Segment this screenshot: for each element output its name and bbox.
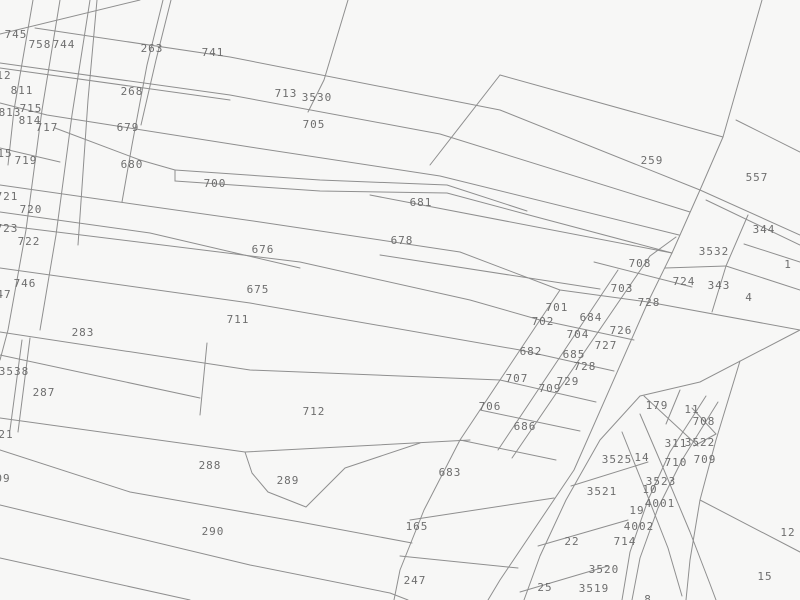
parcel-label-676: 676 [252, 243, 275, 256]
parcel-label-702: 702 [532, 315, 555, 328]
parcel-label-8: 8 [644, 593, 652, 600]
parcel-label-679: 679 [117, 121, 140, 134]
parcel-boundary-line [55, 128, 175, 170]
parcel-boundary-line [8, 0, 33, 165]
parcel-label-557: 557 [746, 171, 769, 184]
parcel-label-3520: 3520 [589, 563, 620, 576]
parcel-boundary-line [245, 443, 420, 507]
parcel-boundary-line [460, 440, 556, 460]
parcel-boundary-line [686, 361, 740, 600]
parcel-label-707: 707 [506, 372, 529, 385]
parcel-label-700: 700 [204, 177, 227, 190]
parcel-label-3522: 3522 [685, 436, 716, 449]
parcel-boundary-line [0, 68, 230, 100]
parcel-label-712: 712 [303, 405, 326, 418]
parcel-label-259: 259 [641, 154, 664, 167]
parcel-label-723: 723 [0, 222, 18, 235]
parcel-label-709: 709 [694, 453, 717, 466]
parcel-label-3525: 3525 [602, 453, 633, 466]
parcel-boundary-line [0, 63, 690, 212]
parcel-label-179: 179 [646, 399, 669, 412]
parcel-label-701: 701 [546, 301, 569, 314]
parcel-boundary-line [430, 75, 500, 165]
parcel-label-165: 165 [406, 520, 429, 533]
parcel-label-22: 22 [564, 535, 579, 548]
parcel-label-288: 288 [199, 459, 222, 472]
parcel-label-722: 722 [18, 235, 41, 248]
parcel-boundary-line [0, 558, 190, 600]
parcel-boundary-line [0, 418, 470, 452]
parcel-label-283: 283 [72, 326, 95, 339]
parcel-label-721: 721 [0, 190, 18, 203]
parcel-label-724: 724 [673, 275, 696, 288]
parcel-label-3521: 3521 [587, 485, 618, 498]
parcel-label-745: 745 [5, 28, 28, 41]
parcel-label-683: 683 [439, 466, 462, 479]
parcel-label-287: 287 [33, 386, 56, 399]
parcel-map-canvas[interactable]: 7457587441281171581381471726374126867971… [0, 0, 800, 600]
parcel-label-4001: 4001 [645, 497, 676, 510]
parcel-label-728: 728 [574, 360, 597, 373]
parcel-boundary-line [700, 190, 800, 235]
parcel-label-704: 704 [567, 328, 590, 341]
parcel-boundary-line [500, 75, 723, 137]
parcel-label-263: 263 [141, 42, 164, 55]
parcel-label-706: 706 [479, 400, 502, 413]
parcel-label-713: 713 [275, 87, 298, 100]
parcel-label-3519: 3519 [579, 582, 610, 595]
parcel-boundary-line [380, 255, 600, 289]
parcel-label-4002: 4002 [624, 520, 655, 533]
parcel-label-717: 717 [36, 121, 59, 134]
parcel-label-709: 709 [539, 382, 562, 395]
parcel-label-714: 714 [614, 535, 637, 548]
parcel-label-726: 726 [610, 324, 633, 337]
parcel-label-12: 12 [780, 526, 795, 539]
parcel-boundary-line [712, 215, 748, 312]
parcel-label-710: 710 [665, 456, 688, 469]
parcel-label-728: 728 [638, 296, 661, 309]
parcel-boundary-line [648, 302, 800, 330]
parcel-boundary-line [175, 170, 527, 211]
parcel-boundary-line [18, 338, 30, 432]
parcel-boundary-line [0, 332, 596, 402]
parcel-label-3538: 3538 [0, 365, 29, 378]
parcel-label-21: 21 [0, 428, 14, 441]
parcel-boundary-line [0, 185, 648, 302]
parcel-label-705: 705 [303, 118, 326, 131]
parcel-label-10: 10 [642, 483, 657, 496]
parcel-label-708: 708 [629, 257, 652, 270]
parcel-label-15: 15 [0, 147, 13, 160]
parcel-label-680: 680 [121, 158, 144, 171]
parcel-label-741: 741 [202, 46, 225, 59]
parcel-boundary-line [0, 212, 300, 268]
parcel-label-15: 15 [757, 570, 772, 583]
parcel-label-247: 247 [404, 574, 427, 587]
parcel-label-343: 343 [708, 279, 731, 292]
parcel-label-703: 703 [611, 282, 634, 295]
parcel-boundary-line [665, 266, 726, 268]
parcel-label-681: 681 [410, 196, 433, 209]
cadastral-map-viewport[interactable]: 7457587441281171581381471726374126867971… [0, 0, 800, 600]
parcel-label-290: 290 [202, 525, 225, 538]
parcel-label-19: 19 [629, 504, 644, 517]
parcel-label-744: 744 [53, 38, 76, 51]
parcel-boundary-line [141, 0, 171, 125]
parcel-boundary-line [122, 0, 163, 202]
parcel-boundary-line [175, 181, 529, 215]
parcel-boundary-line [0, 103, 679, 235]
parcel-label-4: 4 [745, 291, 753, 304]
parcel-label-14: 14 [634, 451, 649, 464]
parcel-label-719: 719 [15, 154, 38, 167]
parcel-label-682: 682 [520, 345, 543, 358]
parcel-boundary-line [200, 343, 207, 415]
parcel-label-678: 678 [391, 234, 414, 247]
parcel-label-3530: 3530 [302, 91, 333, 104]
parcel-label-720: 720 [20, 203, 43, 216]
parcel-label-3532: 3532 [699, 245, 730, 258]
parcel-label-675: 675 [247, 283, 270, 296]
parcel-boundary-line [736, 120, 800, 152]
parcel-label-727: 727 [595, 339, 618, 352]
parcel-label-686: 686 [514, 420, 537, 433]
parcel-label-746: 746 [14, 277, 37, 290]
parcel-label-268: 268 [121, 85, 144, 98]
parcel-boundary-line [0, 0, 60, 360]
parcel-boundary-line [410, 498, 554, 520]
parcel-label-1: 1 [784, 258, 792, 271]
parcel-label-47: 47 [0, 288, 12, 301]
parcel-label-344: 344 [753, 223, 776, 236]
parcel-label-684: 684 [580, 311, 603, 324]
parcel-boundary-line [529, 215, 672, 253]
parcel-boundary-line [0, 355, 200, 398]
parcel-label-811: 811 [11, 84, 34, 97]
parcel-label-758: 758 [29, 38, 52, 51]
parcel-boundary-line [0, 505, 408, 600]
parcel-label-25: 25 [537, 581, 552, 594]
parcel-label-708: 708 [693, 415, 716, 428]
parcel-boundary-line [400, 556, 518, 568]
parcel-label-12: 12 [0, 69, 12, 82]
parcel-label-09: 09 [0, 472, 11, 485]
parcel-label-289: 289 [277, 474, 300, 487]
parcel-label-711: 711 [227, 313, 250, 326]
